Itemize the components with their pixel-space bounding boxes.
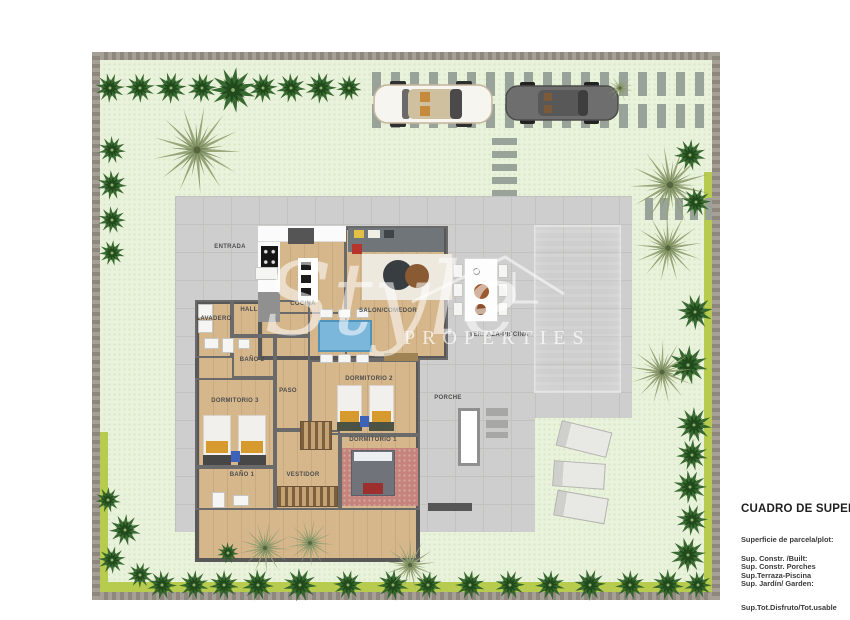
bush-icon	[217, 542, 239, 564]
bush-icon	[283, 568, 317, 602]
bush-icon	[95, 487, 121, 513]
bush-icon	[98, 546, 126, 574]
bush-icon	[127, 563, 153, 589]
bush-icon	[670, 538, 706, 573]
palm-tree-icon	[606, 74, 634, 102]
bush-icon	[377, 569, 409, 601]
bush-icon	[179, 570, 209, 600]
surface-table-footer: Sup.Tot.Disfruto/Tot.usable	[741, 603, 850, 612]
bush-icon	[209, 570, 239, 599]
palm-tree-icon	[154, 107, 241, 194]
bush-icon	[455, 570, 484, 600]
bush-icon	[98, 136, 126, 164]
bush-icon	[677, 295, 713, 330]
surface-table-title: CUADRO DE SUPERFICIES	[741, 503, 850, 515]
bush-icon	[147, 570, 177, 600]
bush-icon	[535, 570, 565, 600]
bush-icon	[496, 570, 526, 600]
bush-icon	[615, 570, 645, 600]
bush-icon	[99, 240, 125, 266]
bush-icon	[210, 67, 255, 113]
surface-table-rows: Sup. Constr. /Built:Sup. Constr. Porches…	[741, 555, 850, 588]
bush-icon	[187, 73, 217, 103]
info-line: Sup. Jardín/ Garden:	[741, 580, 850, 588]
bush-icon	[677, 504, 709, 536]
bush-icon	[676, 439, 708, 471]
bush-icon	[276, 73, 306, 103]
bush-icon	[685, 571, 713, 599]
bush-icon	[652, 569, 684, 600]
palm-tree-icon	[286, 519, 334, 567]
palm-tree-icon	[240, 522, 292, 574]
bush-icon	[109, 514, 141, 546]
bush-icon	[99, 206, 127, 234]
bush-icon	[248, 73, 278, 103]
bush-icon	[125, 74, 155, 104]
bush-icon	[155, 73, 187, 105]
bush-icon	[682, 187, 712, 217]
bush-icon	[574, 569, 606, 601]
bush-icon	[333, 570, 363, 600]
watermark-caption: PROPERTIES	[404, 327, 591, 349]
bush-icon	[306, 72, 337, 104]
site-plan-page: ENTRADACOCINASALON/COMEDORTERRAZA-PISCIN…	[0, 0, 850, 620]
watermark-logo: Style PROPERTIES	[262, 202, 572, 402]
surface-table: CUADRO DE SUPERFICIES Superficie de parc…	[741, 503, 850, 612]
surface-table-subtitle: Superficie de parcela/plot:	[741, 535, 850, 544]
palm-tree-icon	[634, 214, 702, 281]
bush-icon	[97, 170, 127, 200]
garden-plot: ENTRADACOCINASALON/COMEDORTERRAZA-PISCIN…	[92, 52, 720, 600]
bush-icon	[95, 73, 125, 103]
bush-icon	[242, 569, 274, 601]
bush-icon	[676, 407, 712, 442]
bush-icon	[674, 470, 707, 504]
bush-icon	[336, 75, 362, 101]
